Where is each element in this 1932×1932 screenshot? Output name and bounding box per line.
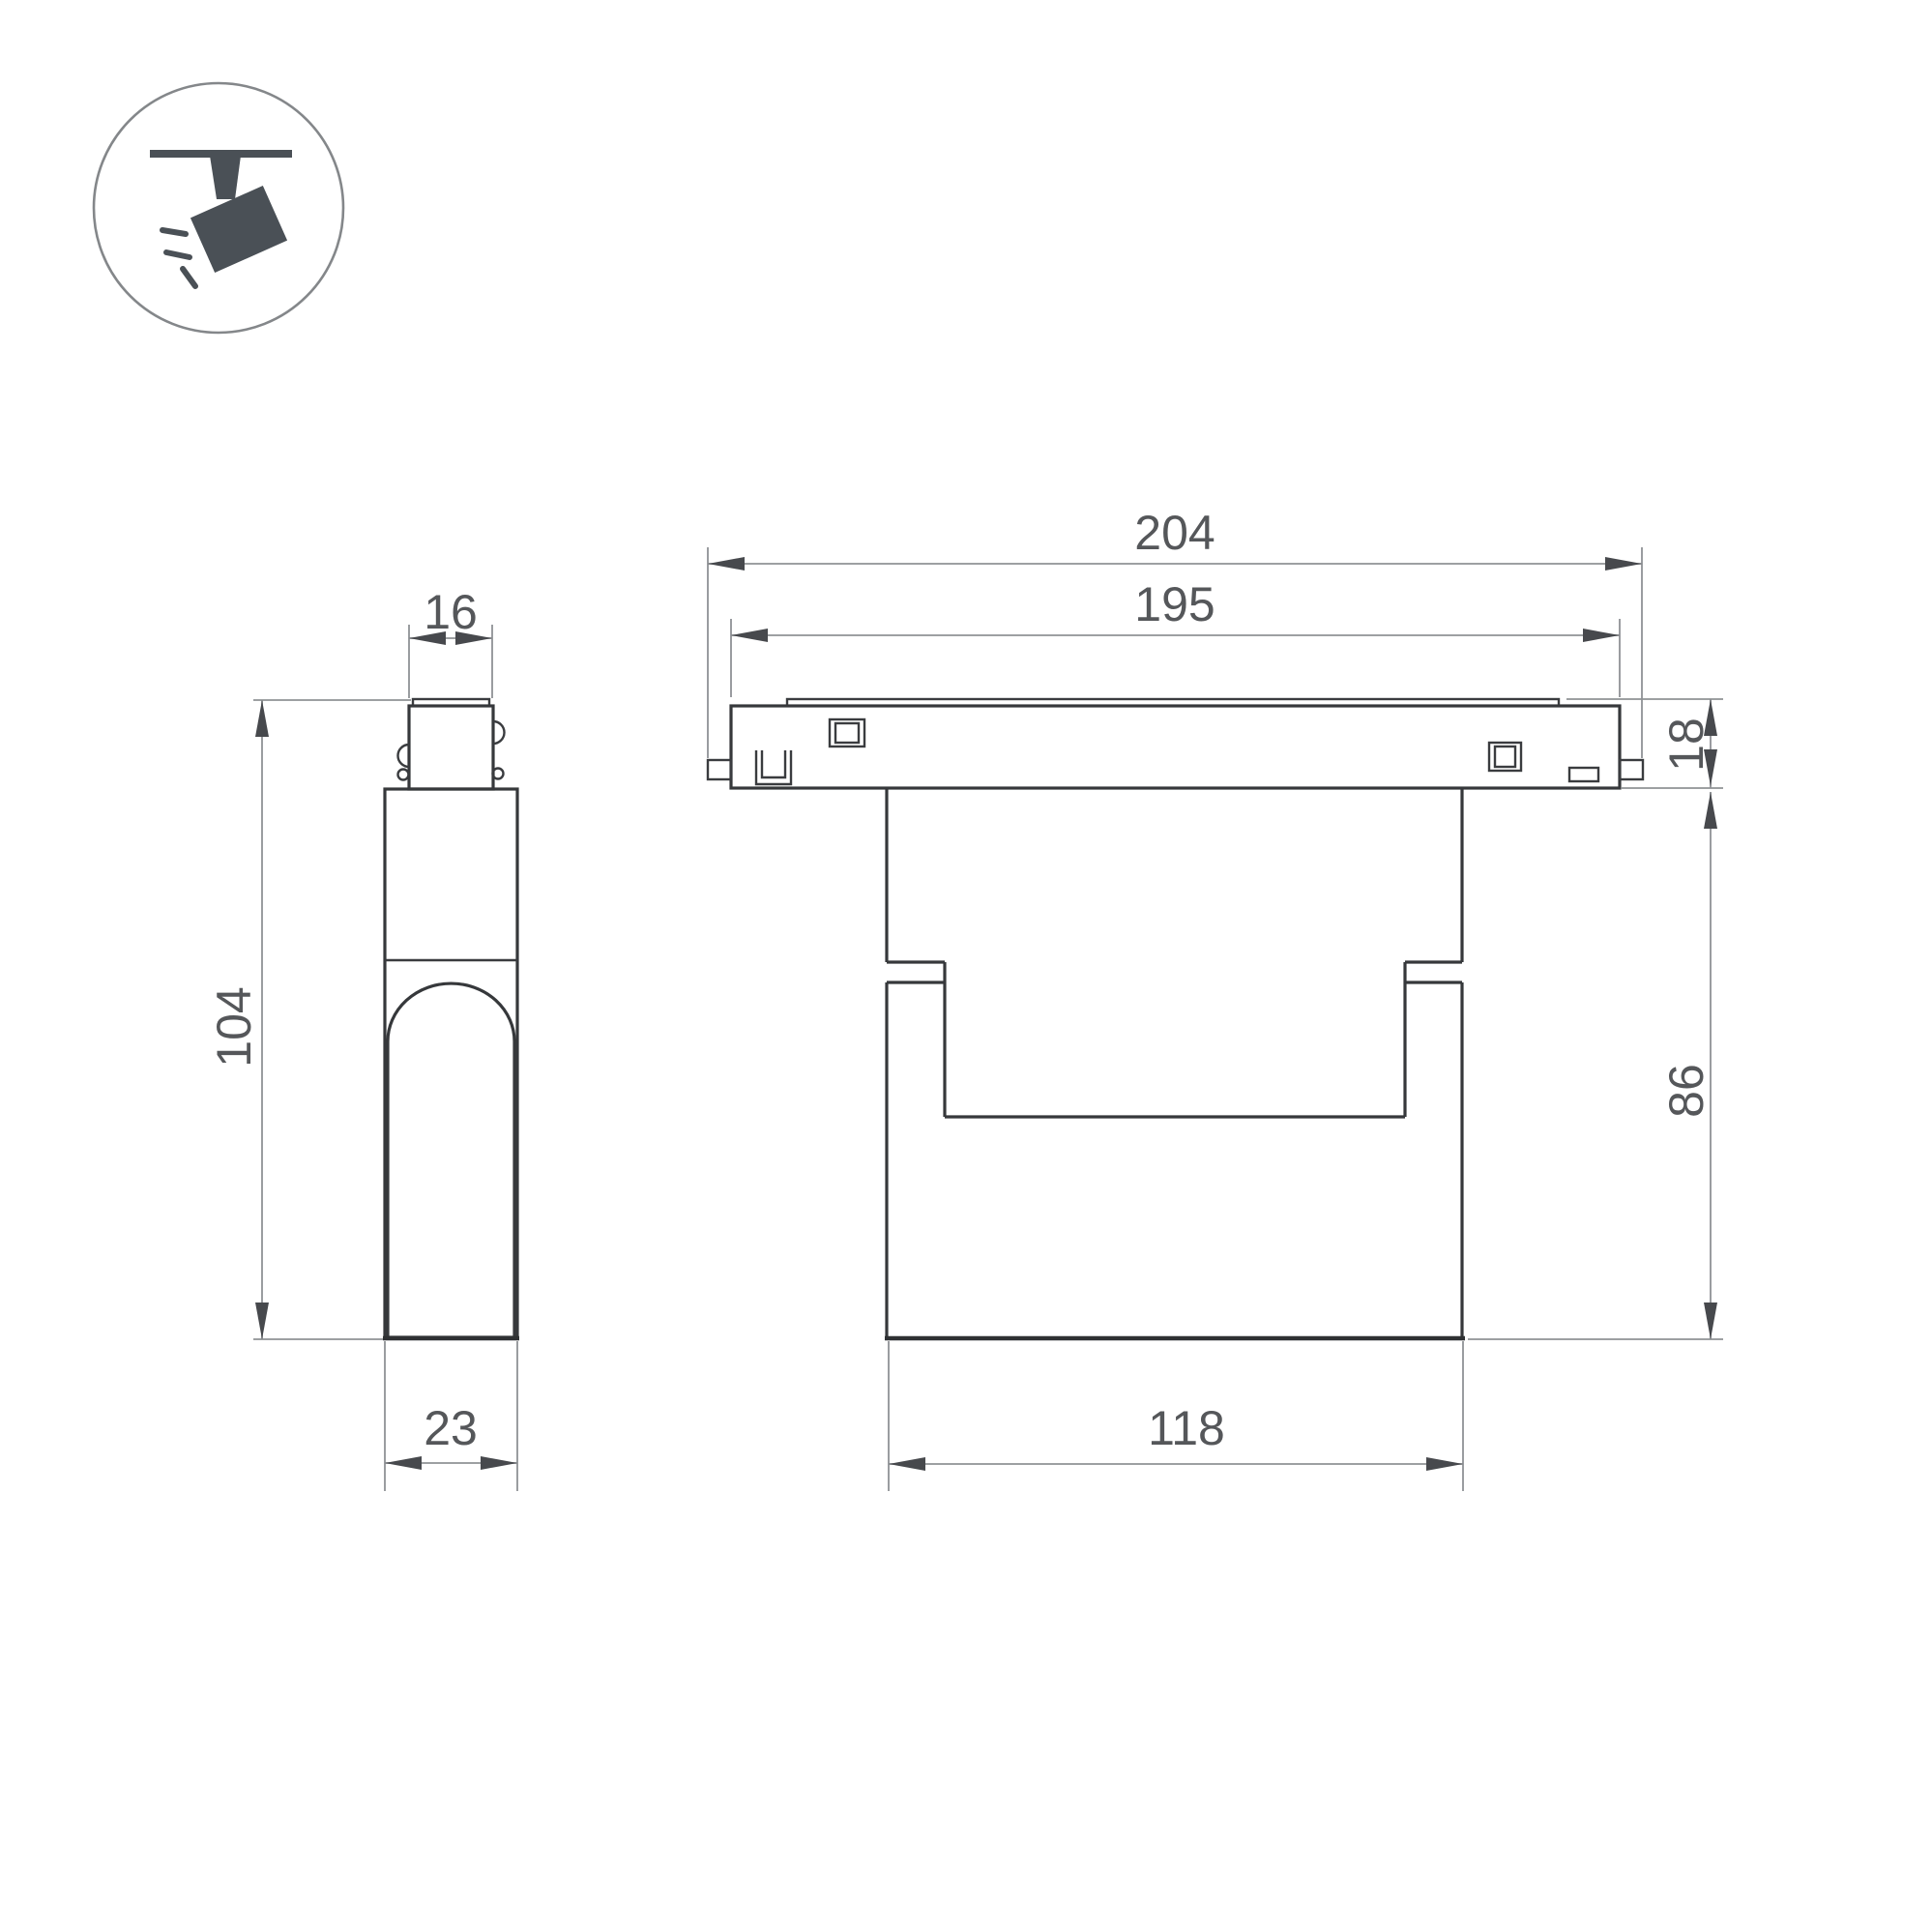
dim-total-height: 104 [207, 700, 411, 1339]
dim-label-204: 204 [1134, 506, 1215, 560]
front-lamp-body [885, 788, 1465, 1338]
drawing-svg: 16 104 23 [0, 0, 1932, 1932]
arrow-left [731, 629, 768, 642]
front-left-contact-tab [708, 760, 731, 779]
side-track-connector [409, 706, 493, 789]
arrow-up [255, 700, 269, 737]
track-spotlight-icon [94, 83, 343, 333]
dim-label-104: 104 [207, 986, 261, 1067]
arrow-up [1704, 792, 1717, 829]
dim-label-16: 16 [424, 585, 478, 639]
front-connector-block-right-inner [1495, 746, 1515, 767]
dim-lamp-width: 118 [889, 1341, 1463, 1491]
dim-connector-width: 16 [409, 585, 492, 698]
side-left-hook [398, 770, 409, 780]
dim-label-118: 118 [1148, 1401, 1225, 1455]
front-connector-block-left-inner [835, 723, 859, 743]
front-fold-panel-recess [945, 962, 1405, 1117]
dim-label-195: 195 [1134, 577, 1215, 631]
dim-label-23: 23 [424, 1401, 478, 1455]
dim-lamp-height: 86 [1468, 792, 1723, 1339]
side-body-outline [385, 789, 517, 1337]
arrow-left [385, 1456, 422, 1470]
arrow-left [708, 557, 745, 571]
arrow-left [889, 1457, 925, 1471]
side-view: 16 104 23 [207, 585, 519, 1491]
dim-track-body-length: 195 [731, 577, 1620, 697]
front-right-contact-tab [1620, 760, 1643, 779]
dim-label-86: 86 [1659, 1064, 1713, 1118]
dim-track-height: 18 [1566, 699, 1723, 788]
front-side-slots [887, 962, 1462, 982]
front-bracket-inner [762, 750, 785, 777]
front-slot-detail [1569, 768, 1598, 781]
dim-label-18: 18 [1659, 717, 1713, 772]
dimension-drawing-canvas: 16 104 23 [0, 0, 1932, 1932]
arrow-down [255, 1303, 269, 1339]
side-left-clip [398, 745, 409, 767]
dim-body-depth: 23 [385, 1341, 517, 1491]
front-view: 204 195 18 86 [708, 506, 1723, 1491]
side-right-clip [493, 721, 505, 744]
arrow-right [1426, 1457, 1463, 1471]
side-fold-dome [388, 983, 514, 1337]
arrow-down [1704, 1303, 1717, 1339]
arrow-right [481, 1456, 517, 1470]
arrow-right [1583, 629, 1620, 642]
arrow-right [1605, 557, 1642, 571]
